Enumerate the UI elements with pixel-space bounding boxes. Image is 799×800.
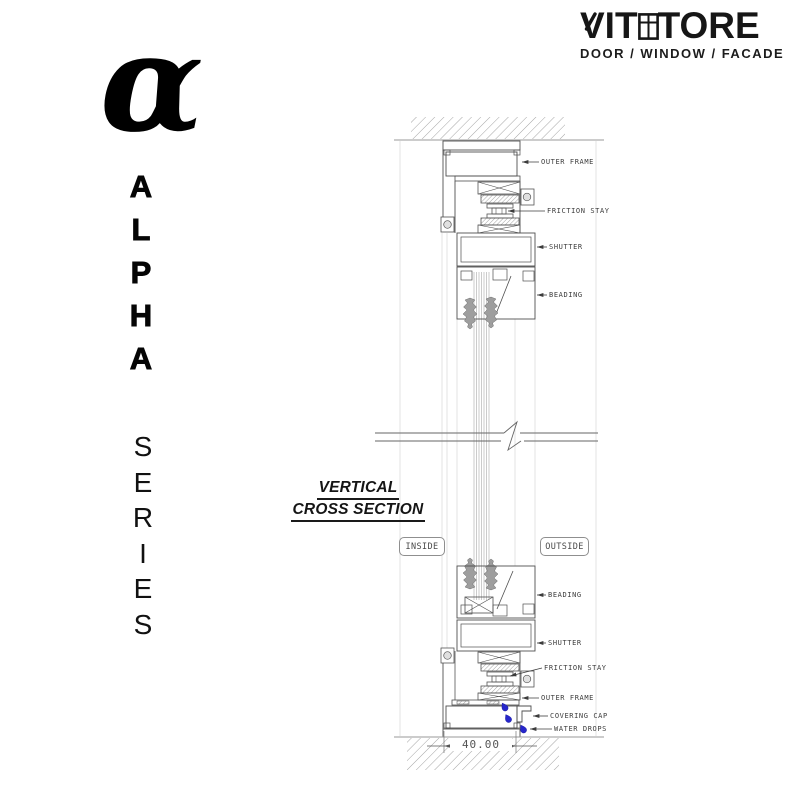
friction-stay-bottom xyxy=(441,648,534,700)
shutter-bottom xyxy=(457,620,535,651)
section-title: VERTICAL CROSS SECTION xyxy=(278,478,438,522)
glass-gaskets-bottom xyxy=(463,558,498,590)
dimension-text: 40.00 xyxy=(450,738,512,751)
callout-water-drops: WATER DROPS xyxy=(554,725,607,733)
callout-shutter-bottom: SHUTTER xyxy=(548,639,582,647)
friction-stay-top xyxy=(478,182,534,233)
inside-badge: INSIDE xyxy=(399,537,445,556)
ceiling-hatch xyxy=(394,117,604,140)
vertical-cross-section-drawing xyxy=(0,0,799,800)
alpha-series-spec-sheet: VIT TORE DOOR / WINDOW / FACADE α A L P … xyxy=(0,0,799,800)
outer-frame-bottom xyxy=(443,663,520,737)
shutter-top xyxy=(457,233,535,266)
section-title-line2: CROSS SECTION xyxy=(291,500,426,522)
covering-cap xyxy=(517,706,531,722)
callout-beading-bottom: BEADING xyxy=(548,591,582,599)
glass-gaskets-top xyxy=(463,297,498,329)
callout-beading-top: BEADING xyxy=(549,291,583,299)
callout-shutter-top: SHUTTER xyxy=(549,243,583,251)
callout-friction-stay-bottom: FRICTION STAY xyxy=(544,664,607,672)
callout-outer-frame-top: OUTER FRAME xyxy=(541,158,594,166)
outside-badge: OUTSIDE xyxy=(540,537,589,556)
callout-outer-frame-bottom: OUTER FRAME xyxy=(541,694,594,702)
callout-covering-cap: COVERING CAP xyxy=(550,712,608,720)
callout-friction-stay-top: FRICTION STAY xyxy=(547,207,610,215)
section-title-line1: VERTICAL xyxy=(317,478,400,500)
